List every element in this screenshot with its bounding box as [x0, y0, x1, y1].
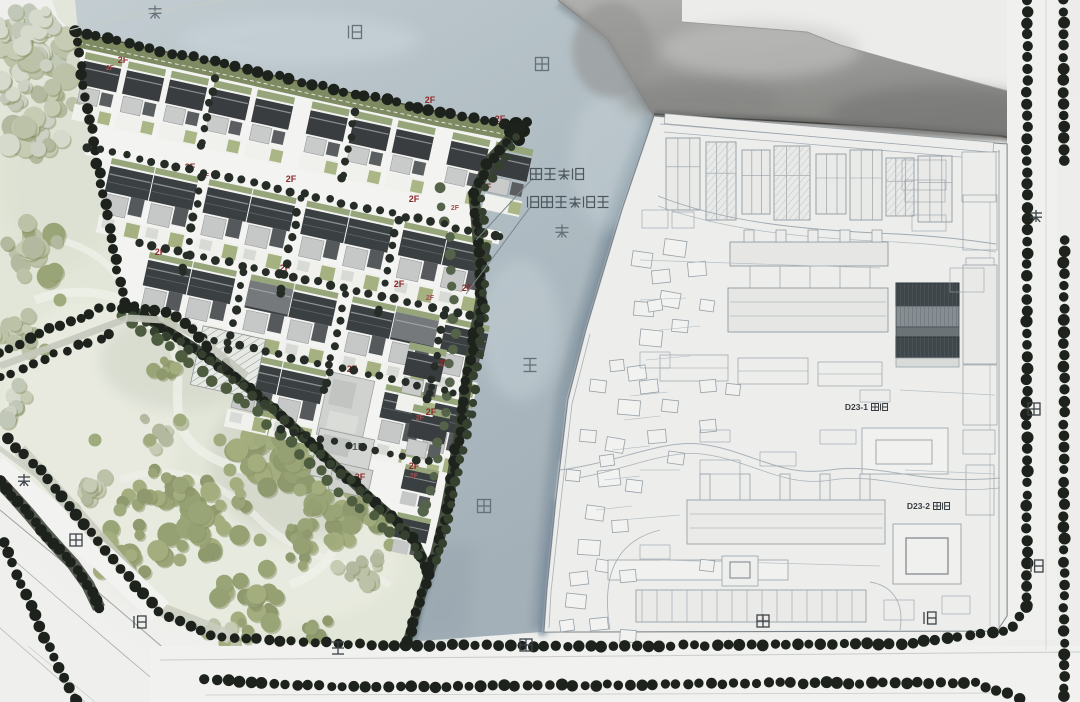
svg-text:D23-1: D23-1	[845, 402, 868, 412]
svg-text:2F: 2F	[286, 174, 297, 184]
svg-text:2F: 2F	[409, 194, 420, 204]
svg-text:2F: 2F	[106, 65, 115, 72]
svg-text:2F: 2F	[426, 407, 437, 417]
svg-text:2F: 2F	[394, 279, 405, 289]
svg-text:2F: 2F	[410, 473, 419, 480]
svg-text:2F: 2F	[425, 95, 436, 105]
svg-text:2F: 2F	[426, 295, 435, 302]
svg-text:2F: 2F	[451, 205, 460, 212]
svg-text:D23-2: D23-2	[907, 501, 930, 511]
svg-text:2F: 2F	[416, 415, 425, 422]
